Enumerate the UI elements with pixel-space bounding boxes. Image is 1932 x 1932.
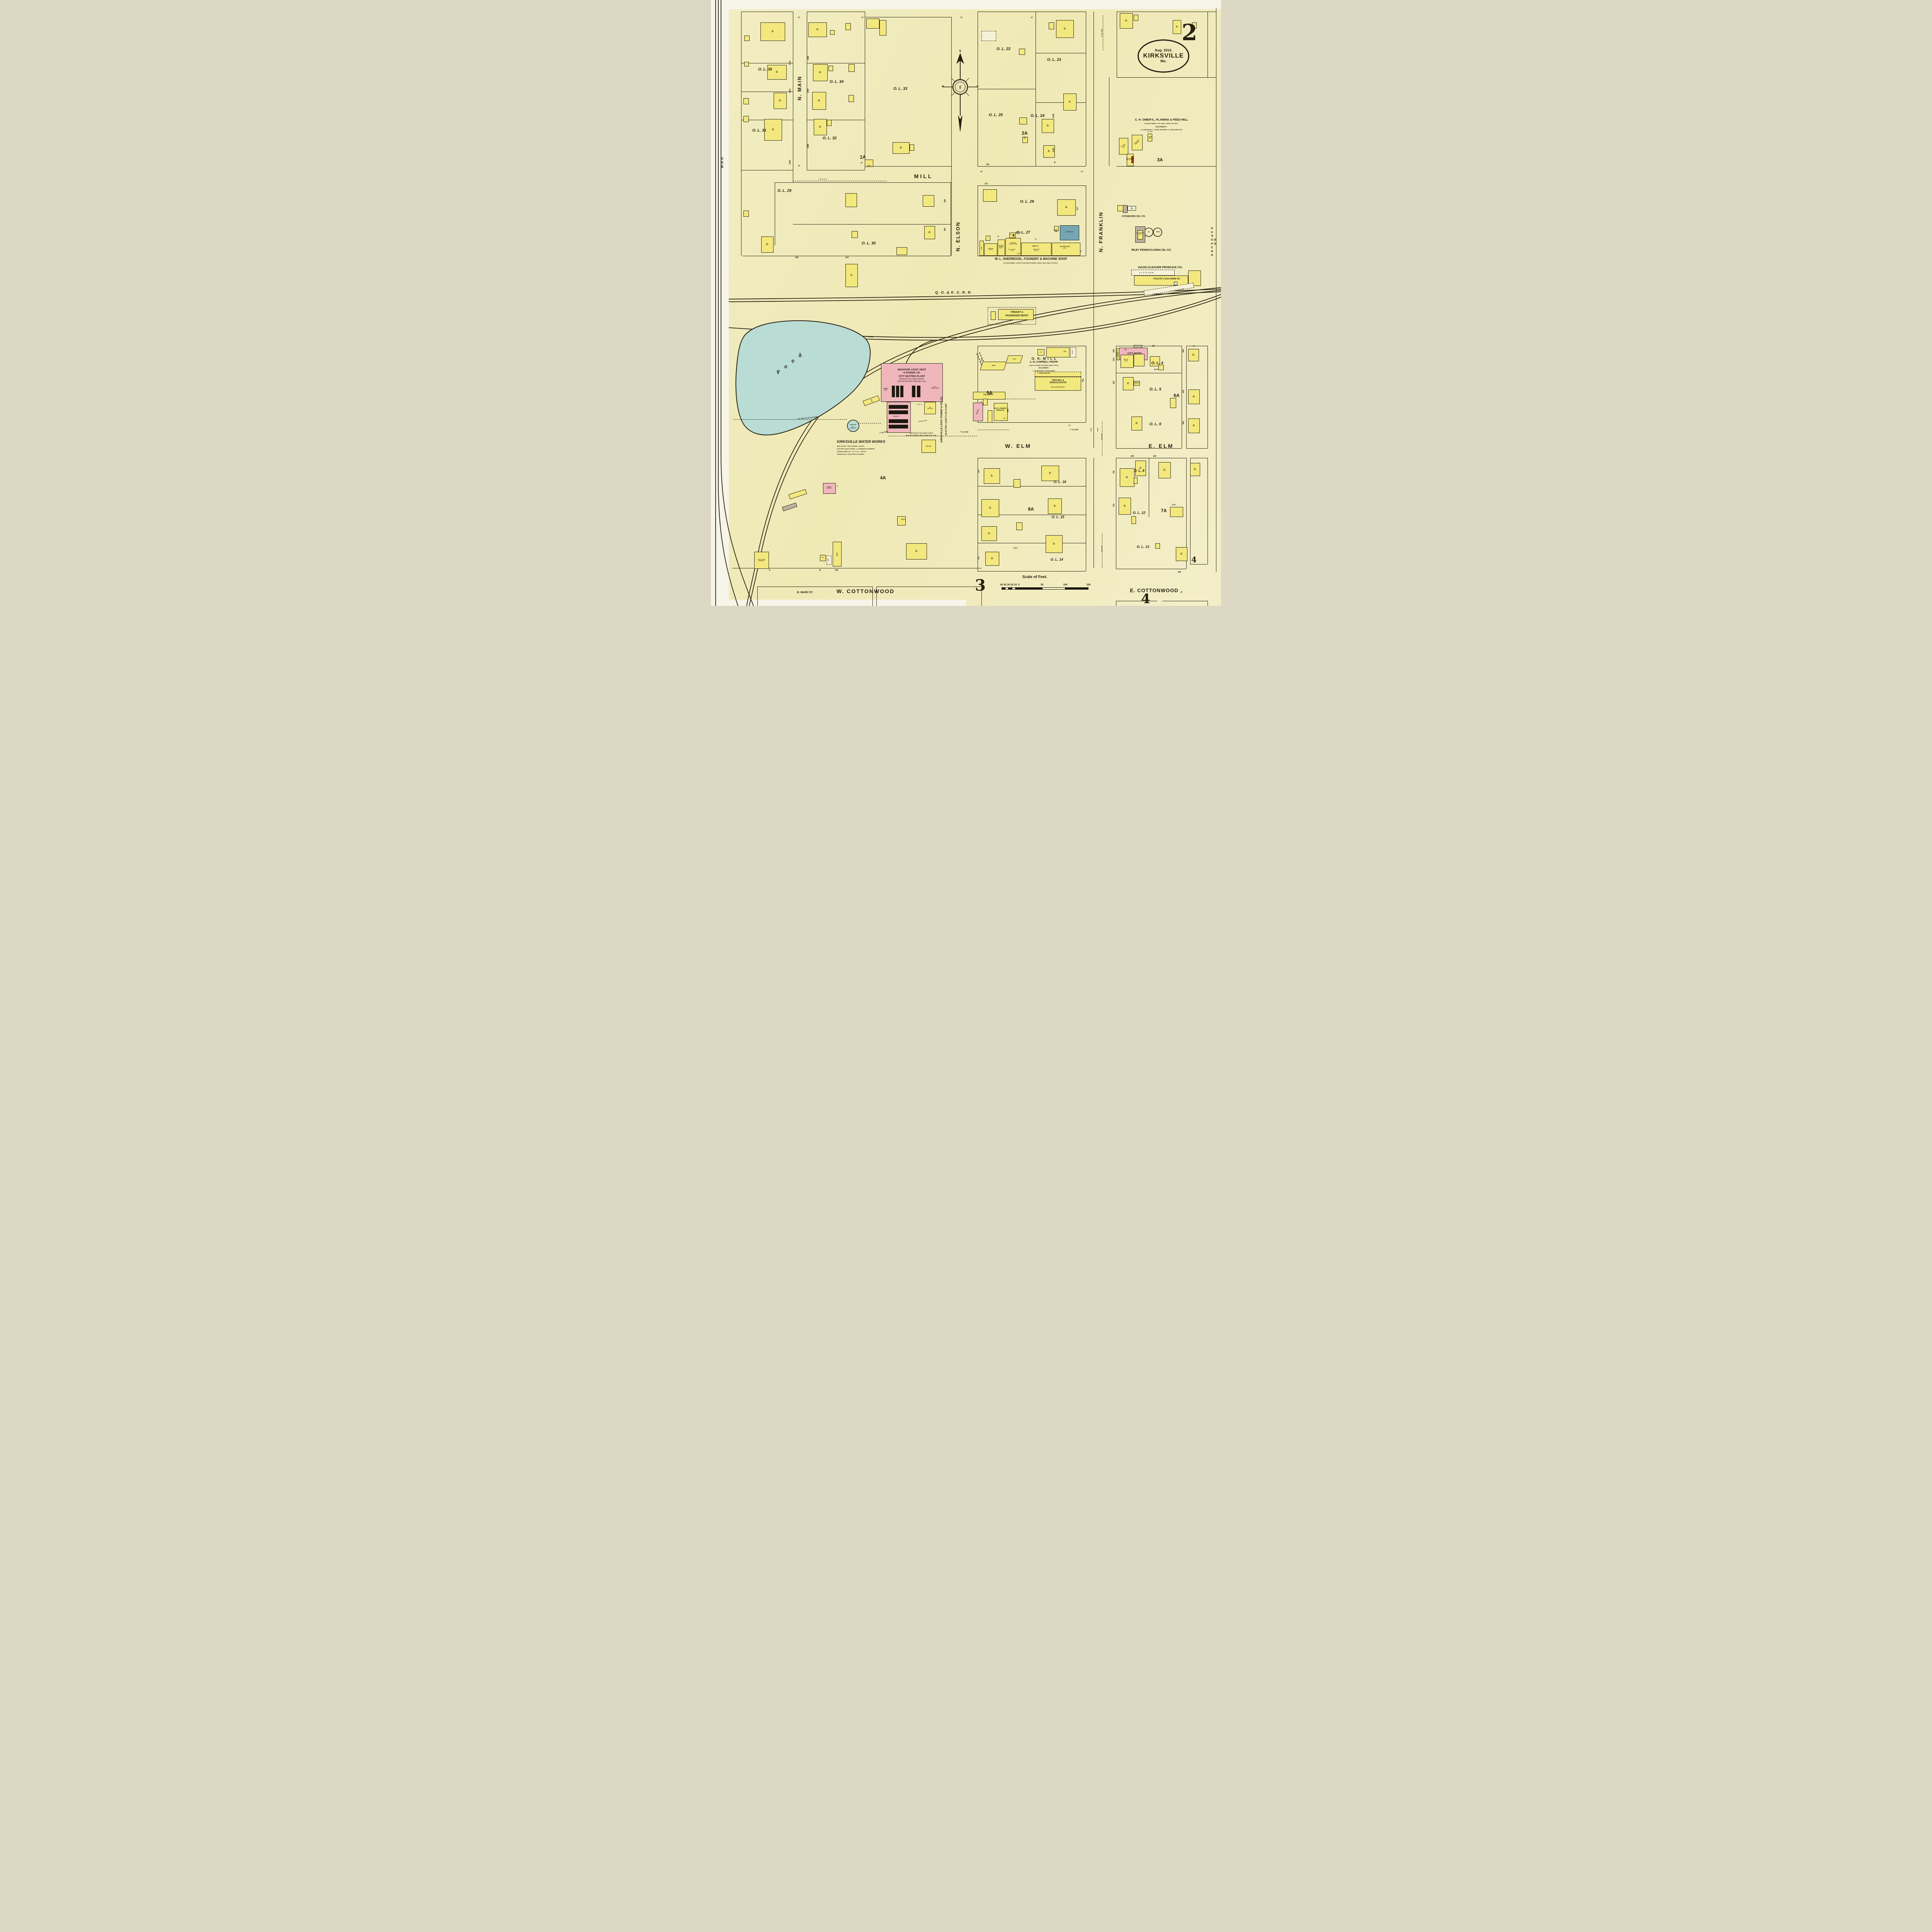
ok-mill-office: OFF. (1063, 351, 1066, 353)
scale-segment (1005, 587, 1009, 590)
block-4a: 4A (880, 475, 886, 480)
dwelling: D. (1120, 13, 1133, 29)
dim-18-1: 18' (861, 162, 863, 163)
dwelling: D. (812, 92, 826, 110)
sherwood-pattern: PATTERN STORAGE (IR.CL.) (999, 246, 1004, 249)
addr-1005: 1005 (789, 160, 792, 164)
addr-701h: 701½ (901, 518, 905, 520)
marker-b3: B. (820, 570, 821, 572)
outlot-13: O. L. 13 (1137, 545, 1150, 549)
biz-kirksville-light: KIRKSVILLE LIGHT, POWER & ICE CO. (940, 396, 943, 442)
bldg-feed-mill-label: 2 B. FEED MILL ENG. & 25 H.P. (1126, 158, 1134, 160)
plant-irch: IR.CH. 75' (917, 404, 922, 405)
scale-bar: 5040302010050100150 (1002, 583, 1106, 591)
oil-shed-ironclad (1123, 205, 1128, 213)
map-line (876, 587, 981, 587)
addr-1006: 1006 (808, 144, 810, 148)
map-line (978, 543, 1086, 543)
block-6a: 6A (1173, 393, 1179, 398)
dwelling: D. (1046, 535, 1063, 553)
outlot-5: O. L. 5 (1150, 387, 1162, 391)
dwelling-label: D. (1189, 349, 1199, 361)
davis-poultry: POULTRY & EGG WARE HO. (1153, 278, 1180, 281)
sanborn-map-sheet: § Aug. 1914. KIRKSVILLE Mo. 2 Scale of F… (711, 0, 1221, 606)
scale-tick: 150 (1087, 583, 1091, 586)
dwelling-label: D. (1189, 419, 1199, 433)
map-line (978, 185, 978, 256)
outlot-33: O. L. 33 (893, 87, 907, 91)
biz-omers: C. H. OMER'S., PLANING & FEED MILL (1135, 118, 1188, 121)
street-e-cottonwood: E. COTTONWOOD (1130, 588, 1178, 594)
map-line (1207, 458, 1208, 564)
dwelling: D. (1057, 199, 1076, 216)
elevator-box: E (1174, 282, 1177, 285)
depot-platform: PLATFORM (1007, 323, 1022, 325)
block-2a: 2A (1022, 131, 1027, 136)
shed-x (1170, 507, 1183, 517)
vector-layer: § (711, 0, 1221, 606)
map-line (743, 256, 951, 256)
dwelling-label: D. (986, 552, 999, 565)
marker-b: B. (998, 235, 1000, 237)
addr-110h: 110½ (1172, 503, 1176, 505)
dwelling: D. (1042, 119, 1054, 133)
map-line (1086, 185, 1086, 256)
addr-317: 317 (1077, 207, 1079, 210)
outlot-29: O. L. 29 (777, 189, 791, 193)
dwelling-label: D. (765, 119, 782, 140)
scale-tick: 100 (1063, 583, 1068, 586)
bldg-oil-ware-label: OIL WARE HO (IR.CL.) (1136, 233, 1144, 235)
addr-100h: 100½ (867, 165, 871, 167)
dim-50-2: 50' (980, 170, 983, 172)
marker-d: D. (1035, 238, 1037, 240)
scale-tick: 50 (1041, 583, 1043, 586)
map-line (1207, 346, 1208, 448)
marker-e: E. (1080, 250, 1082, 252)
map-line (1094, 458, 1094, 568)
outlot-26: O. L. 26 (1020, 199, 1034, 204)
map-line (732, 568, 981, 568)
davis-platform-n: PLATFORM (1139, 272, 1154, 274)
dwelling: D. (893, 142, 910, 154)
map-line (1086, 12, 1086, 166)
dwelling-label: D. (813, 65, 827, 81)
map-line (1117, 12, 1117, 77)
dwelling-label: D. (1120, 469, 1134, 486)
addr-810b: 810 (1183, 390, 1185, 393)
shed-x (897, 516, 906, 526)
block-8a: 8A (1028, 507, 1034, 512)
hotel-restaurant: REST'R'T FR. PORCH (1117, 352, 1119, 357)
boiler (900, 386, 903, 397)
map-dashed-line (978, 430, 1009, 430)
dwelling: D. (1188, 418, 1200, 433)
marker-a: A. (985, 239, 987, 241)
biz-city-hotel: CITY HOTEL (1128, 352, 1143, 355)
map-line (1116, 458, 1116, 569)
outbuilding (1131, 516, 1136, 524)
biz-riley: RILEY PENNSYLVANIA OIL CO. (1131, 249, 1172, 252)
dwelling-label: D. (1064, 94, 1076, 110)
map-dashed-line (733, 419, 847, 420)
map-line (978, 12, 1086, 12)
addr-710: 710 (1113, 504, 1116, 507)
biz-ok-mill: O. K. M I L L (1032, 357, 1057, 361)
grocery: GRO. (833, 542, 842, 566)
map-line (978, 185, 1086, 186)
dim-18-4: 18' (1031, 16, 1033, 18)
outlot-16: O. L. 16 (1054, 480, 1066, 484)
marker-b2: B. (981, 401, 982, 403)
dwelling: D. (1158, 462, 1171, 478)
machine-shop (1052, 243, 1080, 256)
svg-text:§: § (959, 85, 961, 90)
dwelling-label: D. (893, 143, 909, 153)
sherwood-eng: GASOL. ENG. (1R. & 1R. (1033, 249, 1039, 252)
plant-note-1: MAN ON DUTY DAY & NIGHT.-LIGHTS: (910, 433, 933, 434)
outlot-30: O. L. 30 (862, 241, 876, 245)
adjacent-sheet-3: 3 (975, 577, 986, 595)
note-no-exposure: NO EXPOSURE (1210, 228, 1216, 258)
depot-line1: FREIGHT & (1011, 311, 1023, 314)
map-line (978, 422, 1086, 423)
dwelling: D. (1048, 498, 1062, 514)
scale-segment (1002, 587, 1005, 590)
dwelling-label: D. (1048, 499, 1061, 514)
outbuilding (896, 247, 907, 255)
map-line (775, 182, 951, 183)
dwelling-label: D. (1042, 119, 1054, 133)
block-1a: 1A (860, 155, 866, 160)
sherwood-storage: STORAGE (IR.CL.) (988, 248, 993, 251)
map-line (1036, 102, 1086, 103)
addr-810: 810 (1113, 381, 1116, 384)
ok-mill-note3: 1: STONE BUHR.-2: IRON BUHRS.- (1032, 370, 1055, 372)
planing-mill: PLANING MILL (1119, 138, 1128, 155)
outbuilding (849, 95, 854, 102)
dwelling: D. (1120, 468, 1134, 487)
scale-tick: 10 (1014, 583, 1017, 586)
map-line (1207, 12, 1208, 77)
biz-mo-light-5: LIGHT: ELECTRIC.-HEAT: STEAM.-FUEL: COAL… (897, 381, 927, 383)
dwelling: D. (906, 543, 927, 560)
dim-75: 75' (960, 16, 963, 18)
biz-omers-note: NO WATCHMAN. -NO LIGHT. -HEAT: STOVES:- (1145, 123, 1179, 124)
outbuilding (1134, 15, 1138, 21)
dim-18-hotel: 18' (1152, 345, 1155, 348)
map-line (793, 12, 793, 182)
biz-water-works: KIRKSVILLE WATER WORKS (837, 440, 885, 444)
fence-label: FENCE (818, 179, 828, 180)
pipe-4w: 4" W. PIPE (1101, 29, 1103, 37)
alley-a: A. (1193, 345, 1195, 348)
dwelling: D. (984, 468, 1000, 484)
hay-cement-office: OFF. (1003, 418, 1006, 419)
map-line (807, 12, 865, 12)
boiler (892, 386, 895, 397)
addr-814: 814 (1113, 358, 1116, 361)
dwelling: D. (1190, 463, 1200, 476)
hotel-2b: 2B. (1124, 349, 1127, 350)
dwelling: D. (814, 119, 827, 135)
addr-216: 216 (835, 570, 838, 572)
hay-feed-warehouse-2: HAY & FEED WARE HO. (754, 552, 769, 569)
addr-110: 110 (1153, 456, 1156, 458)
outlot-15: O. L. 15 (1052, 515, 1065, 519)
compass-e: E (977, 86, 978, 88)
scale-segment (1019, 587, 1042, 590)
dwelling-label: D. (1119, 498, 1131, 514)
ice-house-label: ICE HO. (922, 440, 935, 452)
sherwood-foundry: FOUNDRY EARTH FLOOR (1009, 243, 1017, 245)
outlot-6: O. L. 6 (1150, 422, 1162, 426)
plant-br-fl: BR. FL. WOOD POSTS (931, 387, 939, 389)
addr-109: 109 (1178, 571, 1181, 574)
map-line (1190, 458, 1207, 458)
dwelling-label: D. (982, 527, 997, 541)
addr-716: 716 (1113, 471, 1116, 474)
dynamo (889, 405, 908, 409)
gro-gasol: 50: GAL GASOL. TANK (1054, 230, 1058, 233)
addr-102: 102 (978, 556, 980, 560)
core-oven-fire (1013, 234, 1014, 236)
outlot-31: O. L. 31 (752, 128, 766, 133)
outbuilding (743, 98, 749, 104)
dwelling-label: D. (809, 23, 827, 37)
ok-mill-scales: SCALES (1073, 350, 1074, 354)
map-line (978, 571, 1086, 571)
dwelling-label: D. (1190, 463, 1200, 476)
outlot-35: O. L. 35 (758, 67, 772, 71)
boiler (912, 386, 915, 397)
dwelling: D. (808, 22, 827, 37)
outbuilding (910, 145, 914, 151)
dwelling-label: D. (762, 237, 773, 252)
hotel-roof-annex (1134, 345, 1142, 348)
dwelling: D. (1119, 498, 1131, 515)
map-line (807, 63, 865, 63)
street-n-elson: N. ELSON (956, 221, 961, 251)
street-w-elm: W. ELM (1005, 443, 1031, 449)
scale-segment (1009, 587, 1012, 590)
dwelling-label: D. (1058, 200, 1075, 215)
map-line (1116, 458, 1186, 458)
outlot-8: O. L. 8 (1134, 469, 1145, 473)
outlot-32: O. L. 32 (823, 136, 837, 140)
street-n-main: N. MAIN (797, 76, 803, 100)
dwelling-label: D. (984, 469, 1000, 483)
reservoir-label: Reservoir (850, 424, 857, 425)
outbuilding (1134, 478, 1138, 484)
addr-220: 220 (795, 257, 798, 259)
tank-tanks: TANKS (1156, 231, 1160, 233)
scale-tick: 40 (1003, 583, 1006, 586)
biz-mo-light-1: MISSOURI LIGHT, HEAT (898, 368, 926, 371)
dwelling-label: D. (761, 23, 785, 41)
pipe-7w-3: 7" W. PIPE (1070, 429, 1079, 430)
pipe-twp-4: T.W.PIPE (1101, 546, 1103, 552)
depot-annex (991, 311, 996, 320)
dwelling: D. (985, 552, 999, 566)
ice-house: ICE HO. (922, 440, 936, 453)
dwelling-label: D. (1056, 20, 1073, 37)
map-dashed-line (1036, 307, 1036, 324)
scale-title: Scale of Feet. (1022, 575, 1047, 579)
biz-omers-mach: MACHINERY:- (1156, 126, 1167, 128)
addr-304: 304 (944, 228, 947, 231)
dwelling (983, 189, 997, 202)
shed: SHED (1037, 349, 1044, 355)
compass-n: N (959, 50, 961, 53)
depot-line2: PASSENGER DEPOT (1005, 315, 1029, 318)
grocery-concrete-block (1060, 225, 1079, 240)
map-line (1116, 373, 1182, 373)
outlot-23: O. L. 23 (1047, 58, 1061, 62)
biz-mo-light-2: & POWER CO. (903, 371, 920, 374)
pipe-twp-1: T.W.P. (1091, 428, 1092, 432)
dwelling-label: D. (982, 500, 999, 517)
dwelling: D. (845, 264, 858, 287)
addr-106: 106 (1131, 456, 1134, 458)
biz-kirksville-light-2: ELECTRIC LIGHT & ICE PLANT (945, 403, 947, 435)
addr-802: 802 (1183, 421, 1185, 424)
compass-w: W (942, 86, 944, 88)
map-line (1117, 12, 1216, 12)
map-dashed-line (793, 181, 887, 181)
map-line (951, 17, 952, 256)
map-line (1036, 12, 1036, 166)
outbuilding (849, 64, 855, 72)
scale-tick: 50 (1000, 583, 1003, 586)
biz-mo-light-3: CITY HEATING PLANT (899, 375, 925, 378)
dwelling-label: D. (1132, 417, 1142, 430)
dwelling-label: D. (1123, 378, 1133, 390)
map-line (741, 170, 793, 170)
street-e-elm: E. ELM (1149, 443, 1174, 449)
adjacent-sheet-4b: 4 (1191, 555, 1197, 564)
ww-note-4: 750,000 GAL'S. EACH PER 24: HOURS.- (837, 454, 865, 455)
outbuilding (845, 23, 851, 30)
vacant-1: VACANT (983, 394, 993, 396)
map-line (793, 224, 951, 224)
map-line (741, 12, 742, 256)
ok-mill-note4: 1: CORN SHELLER.- (1037, 372, 1051, 374)
addr-702h: 702½ (1013, 547, 1017, 549)
title-state: Mo. (1160, 60, 1167, 63)
hay-feed-warehouse: HAY & FEED WARE HO. (1132, 135, 1143, 150)
bldg-gro-fruit: Gro. & Fruit (1124, 359, 1128, 362)
biz-davis-cleaver: DAVIS-CLEAVER PRODUCE CO. (1138, 266, 1182, 269)
outbuilding (1019, 49, 1025, 55)
dynamo (889, 425, 908, 429)
dwelling: D. (1123, 377, 1134, 390)
outlot-34: O. L. 34 (830, 80, 844, 84)
map-line (978, 89, 1036, 89)
outbuilding (827, 120, 832, 126)
dwelling-label: D. (813, 92, 826, 109)
map-line (1094, 12, 1094, 448)
map-line (1116, 569, 1186, 569)
marker-c: C. (1010, 233, 1012, 235)
map-line (865, 17, 951, 17)
map-line (1036, 53, 1086, 53)
map-line (1190, 564, 1207, 565)
bldg-corn-crib-label: 1 CORN CRIB (1148, 136, 1152, 139)
hydrant-dh: D.H. (1068, 425, 1071, 427)
plant-pump-rm: PUMP R'M. (883, 388, 888, 391)
feed-mill-motor: ELEC. MOTOR 20 H.P. (1051, 387, 1065, 388)
map-line (741, 12, 793, 12)
outbuilding (743, 116, 749, 122)
addr-308: 308 (944, 199, 947, 202)
map-line (1186, 448, 1207, 449)
addr-1011: 1011 (789, 89, 792, 93)
outbuilding (852, 231, 858, 238)
biz-ok-mill-propr: A. M. CAMPBELL PROPR. (1030, 361, 1058, 364)
scale-tick: 0 (1018, 583, 1020, 586)
outbuilding (866, 19, 879, 29)
wrr-track-3 (721, 0, 753, 606)
outbuilding (1019, 117, 1027, 124)
bldg-cement-ware: CEMENT WARE HO. (827, 487, 832, 489)
street-w-cottonwood: W. COTTONWOOD (837, 588, 895, 595)
map-line (865, 12, 865, 170)
tank-oil: OIL (1148, 231, 1150, 233)
ice-storage-label: ICE STORAGE (925, 402, 935, 414)
biz-omers-mach2: 1: CORN BUHR.-1: CORN CRUSHER.-1: CORN S… (1140, 129, 1183, 131)
bldg-oil-tank-label: OIL TANK (1130, 207, 1133, 209)
sherwood-core-oven: CORE OVEN BL. 28' (1015, 232, 1021, 235)
map-line (1116, 601, 1157, 601)
scale-segment (1012, 587, 1015, 590)
poultry-egg-warehouse (1134, 276, 1188, 286)
bath-house (981, 31, 996, 41)
map-line (1186, 346, 1187, 448)
pipe-twp-2: T.W.P. (1097, 428, 1099, 432)
dynamo (889, 410, 908, 414)
outbuilding (744, 36, 750, 41)
bldg-cb-gro: (C.B.) Gro. (1066, 231, 1074, 233)
dwelling: D. (760, 22, 785, 41)
dwelling-label: D. (1189, 390, 1199, 404)
coke-shed: COKE (980, 241, 984, 256)
map-line (1186, 346, 1207, 346)
reservoir-capacity: CAP'CY:- 140,000 GAL'S. (850, 427, 857, 429)
dim-30-2: 30' (798, 165, 800, 167)
dynamo (889, 419, 908, 423)
dwelling: D. (1056, 20, 1074, 38)
dwelling-label: D. (774, 93, 786, 109)
title-date: Aug. 1914. (1155, 49, 1172, 53)
map-line (978, 12, 978, 166)
ww-note-3: STEAM PUMPS 14" X 7¼" X 12".- CAP'CY:- (837, 451, 867, 452)
block-3a: 3A (1157, 157, 1163, 162)
plant-note-2: ELECTRIC.-POWER & HEAT: STEAM.-FUEL: COA… (906, 435, 937, 437)
sherwood-machine: MACHINE SHOP (CL.) (1060, 246, 1070, 249)
map-line (1149, 458, 1149, 517)
scale-segment (1042, 587, 1065, 590)
dwelling-label: D. (1046, 536, 1062, 553)
title-city: KIRKSVILLE (1143, 53, 1184, 60)
shed-label: SHED (1006, 356, 1022, 363)
biz-sherwood: W. L. SHERWOOD., FOUNDRY & MACHINE SHOP (995, 258, 1067, 261)
store-building (1134, 354, 1145, 366)
dim-30-3: 30' (1081, 170, 1083, 172)
map-line (1182, 346, 1182, 448)
addr-1010: 1010 (808, 88, 810, 93)
scale-tick: 30 (1007, 583, 1010, 586)
